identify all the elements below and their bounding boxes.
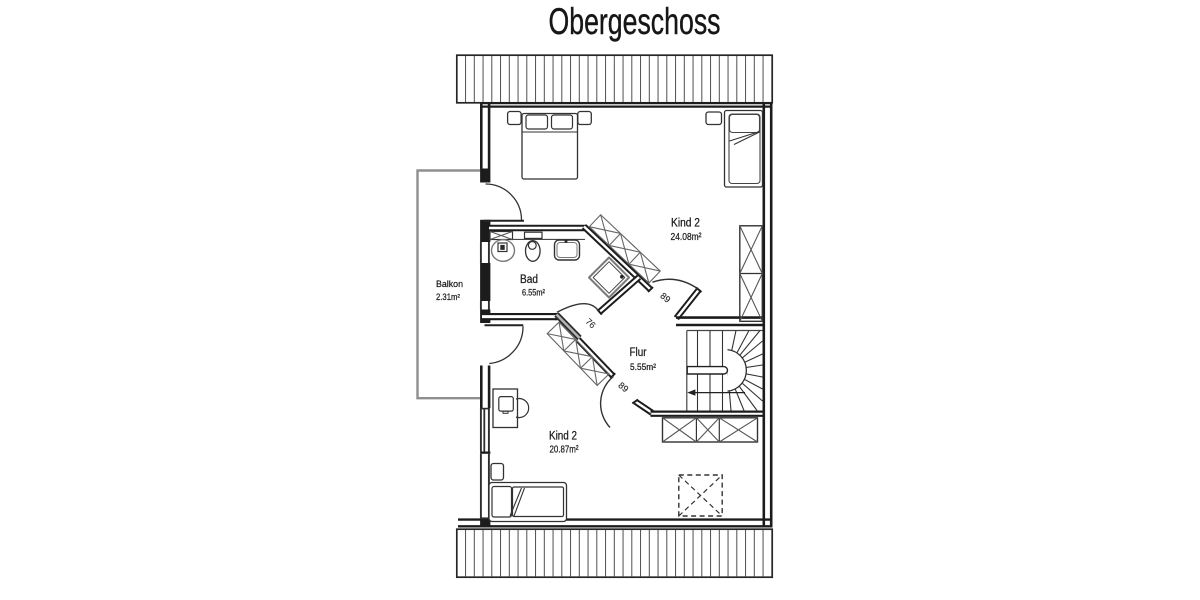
svg-text:Balkon: Balkon — [436, 279, 463, 290]
svg-text:2.31m²: 2.31m² — [436, 292, 460, 302]
svg-text:Kind 2: Kind 2 — [549, 431, 577, 443]
svg-text:20.87m²: 20.87m² — [550, 445, 580, 456]
svg-text:Flur: Flur — [630, 347, 647, 359]
svg-text:Obergeschoss: Obergeschoss — [549, 0, 721, 42]
svg-text:6.55m²: 6.55m² — [522, 288, 545, 299]
svg-text:Kind 2: Kind 2 — [671, 218, 700, 230]
svg-text:24.08m²: 24.08m² — [671, 232, 703, 243]
svg-text:5.55m²: 5.55m² — [630, 362, 656, 373]
svg-text:Bad: Bad — [520, 274, 538, 286]
